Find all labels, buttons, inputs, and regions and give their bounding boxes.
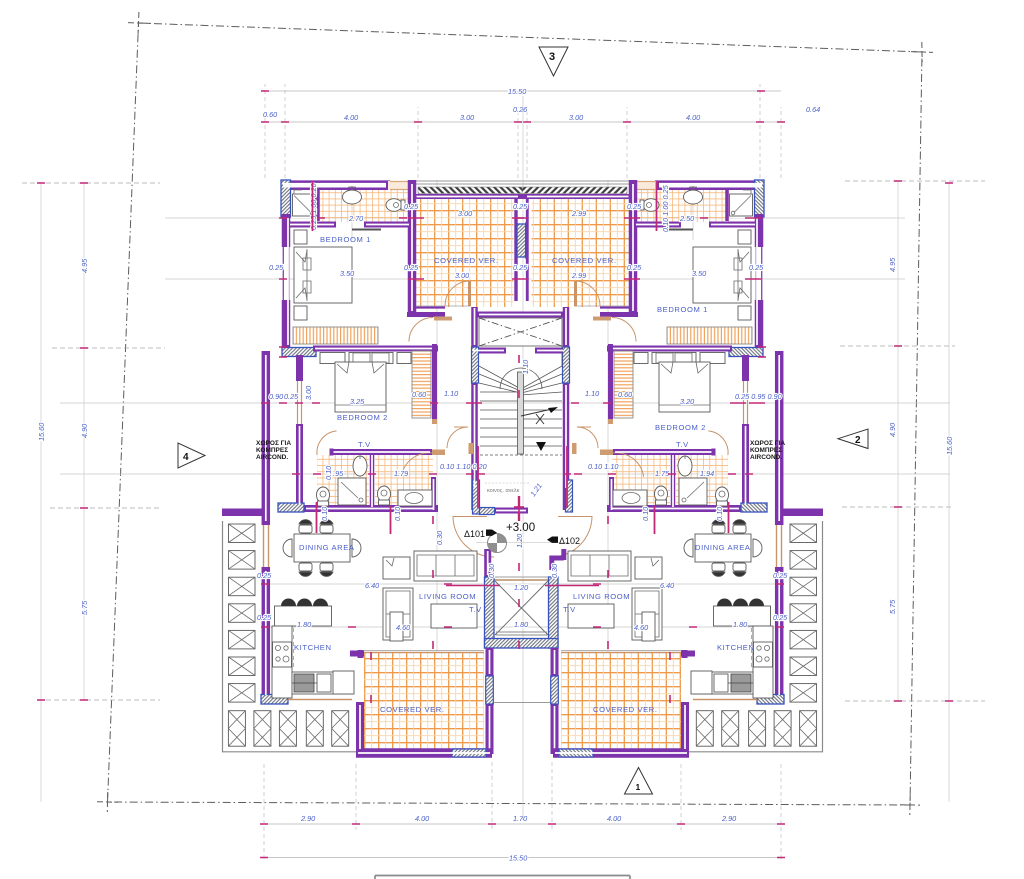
svg-text:T.V: T.V: [469, 605, 482, 614]
svg-text:3: 3: [549, 51, 555, 63]
svg-text:0.25 0.95 0.90: 0.25 0.95 0.90: [735, 392, 782, 401]
svg-text:15.60: 15.60: [37, 423, 46, 441]
svg-text:4.60: 4.60: [634, 623, 648, 632]
svg-text:0.25: 0.25: [404, 202, 419, 211]
svg-text:4.95: 4.95: [888, 257, 897, 272]
svg-text:2.50: 2.50: [679, 214, 694, 223]
svg-text:0.64: 0.64: [806, 105, 820, 114]
svg-text:0.30: 0.30: [435, 531, 444, 545]
svg-text:0.10: 0.10: [324, 466, 333, 480]
svg-text:0.10: 0.10: [393, 507, 402, 521]
svg-text:LIVING ROOM: LIVING ROOM: [419, 592, 476, 601]
svg-text:5.75: 5.75: [888, 599, 897, 614]
svg-text:COVERED VER.: COVERED VER.: [593, 705, 658, 714]
svg-text:15.50: 15.50: [509, 854, 527, 863]
svg-text:3.50: 3.50: [340, 269, 354, 278]
svg-text:15.60: 15.60: [945, 437, 954, 455]
svg-text:KITCHEN: KITCHEN: [294, 643, 332, 652]
svg-text:0.10 1.00 0.25: 0.10 1.00 0.25: [661, 184, 670, 232]
svg-text:0.25: 0.25: [749, 263, 764, 272]
svg-text:4.00: 4.00: [607, 814, 621, 823]
svg-text:0.10: 0.10: [715, 507, 724, 521]
svg-text:COVERED VER.: COVERED VER.: [552, 256, 617, 265]
svg-text:0.25: 0.25: [627, 263, 642, 272]
svg-text:4: 4: [183, 452, 189, 463]
svg-text:0.25: 0.25: [269, 263, 284, 272]
svg-text:3.25: 3.25: [350, 397, 365, 406]
svg-text:0.10: 0.10: [320, 507, 329, 521]
svg-text:1.10: 1.10: [444, 389, 458, 398]
svg-text:1.80: 1.80: [733, 620, 747, 629]
svg-text:1.10: 1.10: [585, 389, 599, 398]
svg-text:0.30: 0.30: [550, 564, 559, 578]
svg-text:+3.00: +3.00: [506, 522, 535, 534]
svg-text:0.25: 0.25: [627, 202, 642, 211]
svg-text:LIVING ROOM: LIVING ROOM: [573, 592, 630, 601]
svg-text:2.99: 2.99: [571, 271, 586, 280]
svg-text:ΧΩΡΟΣ ΓΙΑ: ΧΩΡΟΣ ΓΙΑ: [256, 440, 291, 447]
svg-text:3.20: 3.20: [680, 397, 694, 406]
svg-text:1.10: 1.10: [521, 360, 530, 374]
svg-text:2.90: 2.90: [300, 814, 315, 823]
svg-text:4.90: 4.90: [888, 423, 897, 437]
svg-text:Δ101: Δ101: [464, 529, 485, 539]
svg-text:0.60: 0.60: [618, 390, 632, 399]
svg-text:0.90: 0.90: [269, 392, 283, 401]
svg-text:4.90: 4.90: [80, 424, 89, 438]
svg-text:COVERED VER.: COVERED VER.: [434, 256, 499, 265]
svg-text:ΧΩΡΟΣ ΓΙΑ: ΧΩΡΟΣ ΓΙΑ: [750, 440, 785, 447]
svg-text:3.00: 3.00: [304, 386, 313, 400]
svg-text:1.94: 1.94: [700, 469, 714, 478]
svg-text:T.V: T.V: [358, 440, 371, 449]
svg-text:4.00: 4.00: [344, 113, 358, 122]
svg-text:T.V: T.V: [676, 440, 689, 449]
svg-text:BEDROOM 1: BEDROOM 1: [320, 235, 371, 244]
svg-text:0.30: 0.30: [487, 564, 496, 578]
svg-text:T.V: T.V: [563, 605, 576, 614]
svg-text:1.20: 1.20: [515, 534, 524, 548]
svg-text:0.25: 0.25: [773, 571, 788, 580]
svg-text:Δ102: Δ102: [559, 536, 580, 546]
svg-text:BEDROOM 2: BEDROOM 2: [337, 413, 388, 422]
svg-text:6.40: 6.40: [365, 581, 379, 590]
svg-text:3.00: 3.00: [460, 113, 474, 122]
svg-text:6.40: 6.40: [660, 581, 674, 590]
svg-text:5.75: 5.75: [80, 600, 89, 615]
svg-text:0.25: 0.25: [284, 392, 299, 401]
svg-text:1.80: 1.80: [514, 620, 528, 629]
svg-text:0.25: 0.25: [404, 263, 419, 272]
svg-text:κοινος. ανελκ: κοινος. ανελκ: [487, 488, 520, 494]
svg-text:0.25: 0.25: [513, 263, 528, 272]
svg-text:3.00: 3.00: [569, 113, 583, 122]
svg-text:1.70: 1.70: [513, 814, 527, 823]
svg-text:BEDROOM 1: BEDROOM 1: [657, 305, 708, 314]
svg-text:BEDROOM 2: BEDROOM 2: [655, 423, 706, 432]
svg-text:2.99: 2.99: [571, 209, 586, 218]
svg-text:3.50: 3.50: [692, 269, 706, 278]
svg-text:AIRCOND.: AIRCOND.: [750, 454, 782, 461]
svg-text:COVERED VER.: COVERED VER.: [380, 705, 445, 714]
svg-text:1.80: 1.80: [297, 620, 311, 629]
svg-text:3.00: 3.00: [458, 209, 472, 218]
svg-text:4.00: 4.00: [415, 814, 429, 823]
svg-text:1.20: 1.20: [514, 583, 528, 592]
svg-text:0.25: 0.25: [257, 613, 272, 622]
svg-text:0.25: 0.25: [513, 202, 528, 211]
svg-text:0.26: 0.26: [513, 105, 528, 114]
svg-text:1: 1: [636, 782, 641, 792]
svg-text:0.25: 0.25: [773, 613, 788, 622]
svg-text:1.79: 1.79: [394, 469, 408, 478]
svg-text:2.90: 2.90: [721, 814, 736, 823]
svg-text:KITCHEN: KITCHEN: [717, 643, 755, 652]
svg-text:2.70: 2.70: [348, 214, 363, 223]
svg-text:4.95: 4.95: [80, 258, 89, 273]
svg-text:15.50: 15.50: [508, 87, 526, 96]
svg-text:0.10 1.10: 0.10 1.10: [588, 462, 618, 471]
svg-text:0.10 1.10 0.20: 0.10 1.10 0.20: [440, 462, 487, 471]
svg-text:0.10: 0.10: [641, 507, 650, 521]
svg-text:3.00: 3.00: [455, 271, 469, 280]
svg-text:DINING AREA: DINING AREA: [695, 543, 751, 552]
svg-text:4.60: 4.60: [396, 623, 410, 632]
svg-text:1.75: 1.75: [655, 469, 670, 478]
svg-text:0.25: 0.25: [257, 571, 272, 580]
svg-text:ΚΟΜΠΡΕΣ: ΚΟΜΠΡΕΣ: [256, 447, 288, 454]
svg-text:0.60: 0.60: [412, 390, 426, 399]
svg-text:DINING AREA: DINING AREA: [299, 543, 355, 552]
svg-text:0.25 1.00 0.20: 0.25 1.00 0.20: [309, 183, 318, 230]
svg-text:0.60: 0.60: [263, 110, 277, 119]
svg-text:ΚΟΜΠΡΕΣ: ΚΟΜΠΡΕΣ: [750, 447, 782, 454]
svg-text:2: 2: [855, 435, 861, 446]
svg-text:4.00: 4.00: [686, 113, 700, 122]
svg-text:AIRCOND.: AIRCOND.: [256, 454, 288, 461]
